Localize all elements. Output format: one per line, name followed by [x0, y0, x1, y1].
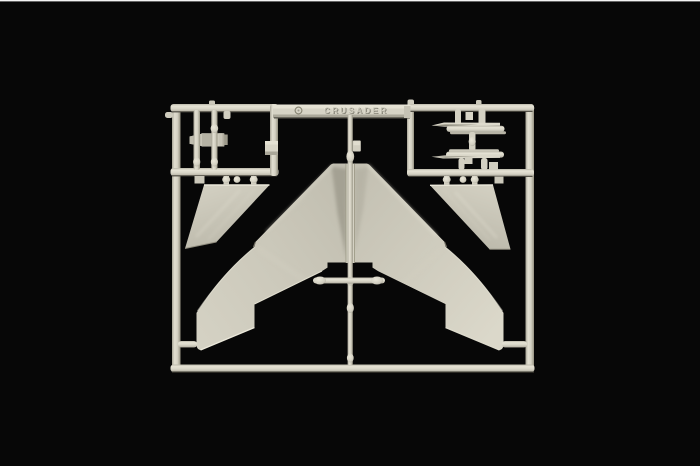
- svg-text:CRUSADER: CRUSADER: [324, 106, 389, 115]
